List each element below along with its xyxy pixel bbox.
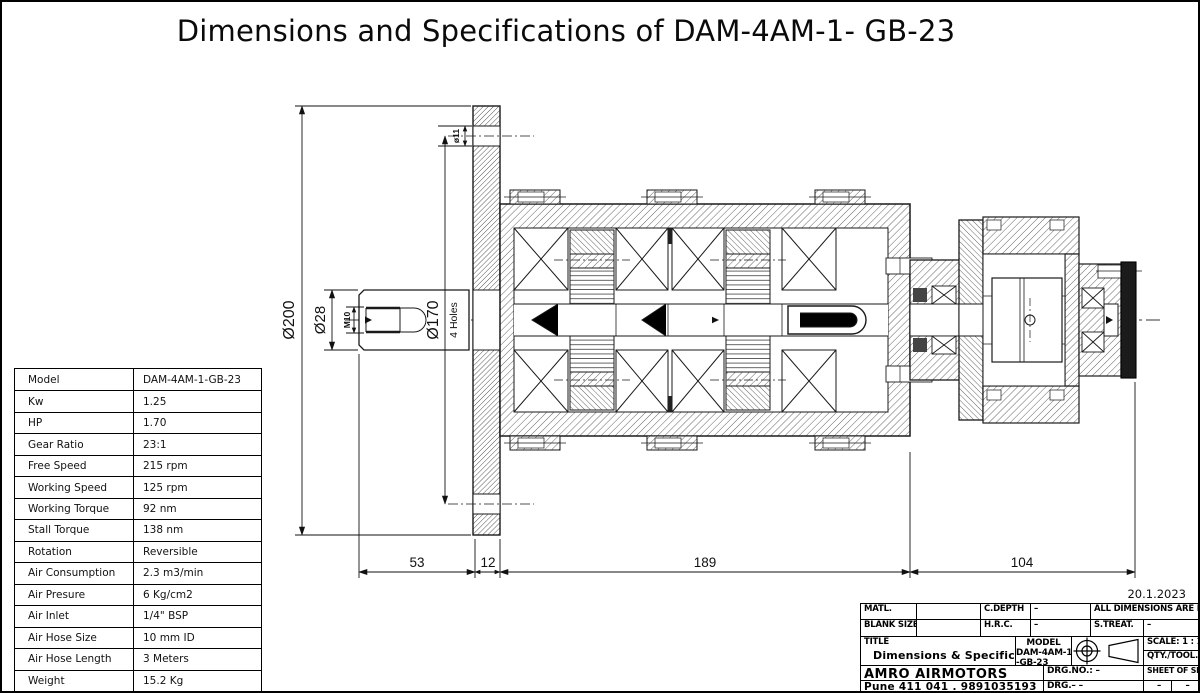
spec-label: Air Inlet — [15, 606, 133, 626]
spec-label: Free Speed — [15, 456, 133, 476]
spec-label: Working Speed — [15, 477, 133, 497]
cdepth-value: – — [1030, 603, 1091, 620]
spec-value: 92 nm — [133, 499, 261, 519]
spec-value: 6 Kg/cm2 — [133, 585, 261, 605]
table-row: Stall Torque138 nm — [15, 519, 261, 540]
rear-end-cap — [1079, 262, 1142, 378]
cdepth-label: C.DEPTH — [980, 603, 1031, 620]
model-cell: MODEL DAM-4AM-1 -GB-23 — [1015, 636, 1072, 666]
sheet-dash-1: – — [1143, 680, 1172, 693]
spec-value: 1.70 — [133, 413, 261, 433]
table-row: Air Presure6 Kg/cm2 — [15, 584, 261, 605]
dim-12: 12 — [480, 555, 495, 570]
blank-size-label: BLANK SIZE — [860, 619, 917, 637]
qty-tool-cell: QTY./TOOL.: – — [1143, 650, 1200, 666]
blank-size-value — [916, 619, 981, 637]
dim-104: 104 — [1011, 555, 1034, 570]
spec-label: Air Presure — [15, 585, 133, 605]
spec-label: Model — [15, 369, 133, 390]
spec-label: Air Hose Length — [15, 649, 133, 669]
scale-cell: SCALE: 1 : 1 — [1143, 636, 1200, 651]
table-row: Air Hose Size10 mm ID — [15, 627, 261, 648]
spec-value: 15.2 Kg — [133, 671, 261, 691]
title-value: Dimensions & Specifications — [873, 650, 1015, 662]
spec-value: 10 mm ID — [133, 628, 261, 648]
spec-value: Reversible — [133, 542, 261, 562]
model-value-1: DAM-4AM-1 — [1016, 648, 1071, 658]
dim-d170: Ø170 — [425, 300, 442, 339]
spec-value: 23:1 — [133, 434, 261, 454]
gearbox-housing — [500, 190, 910, 450]
all-dims-note: ALL DIMENSIONS ARE IN MM. — [1090, 603, 1200, 620]
table-row: ModelDAM-4AM-1-GB-23 — [15, 369, 261, 390]
drg-no-cell: DRG.NO.: – — [1043, 665, 1144, 681]
hrc-label: H.R.C. — [980, 619, 1031, 637]
projection-symbol-cell — [1071, 636, 1144, 666]
spec-value: 125 rpm — [133, 477, 261, 497]
spec-value: 2.3 m3/min — [133, 563, 261, 583]
spec-label: Air Hose Size — [15, 628, 133, 648]
dim-m10: M10 — [342, 311, 352, 328]
table-row: Kw1.25 — [15, 390, 261, 411]
dim-189: 189 — [694, 555, 717, 570]
matl-label: MATL. — [860, 603, 917, 620]
spec-label: HP — [15, 413, 133, 433]
dim-53: 53 — [409, 555, 424, 570]
spec-label: Gear Ratio — [15, 434, 133, 454]
title-cell: TITLE Dimensions & Specifications — [860, 636, 1016, 666]
spec-value: 215 rpm — [133, 456, 261, 476]
spec-value: 138 nm — [133, 520, 261, 540]
table-row: Air Consumption2.3 m3/min — [15, 562, 261, 583]
spec-label: Air Consumption — [15, 563, 133, 583]
title-label: TITLE — [864, 638, 1015, 647]
central-shaft — [514, 304, 888, 336]
sheet-dash-2: – — [1171, 680, 1200, 693]
streat-label: S.TREAT. — [1090, 619, 1144, 637]
spec-label: Kw — [15, 391, 133, 411]
table-row: Gear Ratio23:1 — [15, 433, 261, 454]
spec-label: Stall Torque — [15, 520, 133, 540]
spec-value: 1.25 — [133, 391, 261, 411]
table-row: Weight15.2 Kg — [15, 670, 261, 691]
dim-4holes: 4 Holes — [448, 302, 460, 338]
spec-label: Rotation — [15, 542, 133, 562]
dim-d28: Ø28 — [312, 306, 329, 334]
spec-label: Weight — [15, 671, 133, 691]
drg-cell: DRG.– – — [1043, 680, 1144, 693]
sheet-cell: SHEET OF SHEETS — [1143, 665, 1200, 681]
rotor — [992, 278, 1062, 362]
hrc-value: – — [1030, 619, 1091, 637]
matl-value — [916, 603, 981, 620]
model-label: MODEL — [1016, 638, 1071, 648]
drawing-date: 20.1.2023 — [1102, 587, 1186, 601]
motor-housing — [959, 217, 1079, 423]
table-row: Air Hose Length3 Meters — [15, 648, 261, 669]
table-row: Working Speed125 rpm — [15, 476, 261, 497]
end-plate-dark — [1121, 262, 1136, 378]
title-block: MATL. C.DEPTH – ALL DIMENSIONS ARE IN MM… — [860, 603, 1200, 693]
company-name: AMRO AIRMOTORS — [860, 665, 1044, 681]
table-row: Free Speed215 rpm — [15, 455, 261, 476]
drawing-sheet: Dimensions and Specifications of DAM-4AM… — [0, 0, 1200, 693]
company-address: Pune 411 041 . 9891035193 — [860, 680, 1044, 693]
streat-value: – — [1143, 619, 1200, 637]
spec-label: Working Torque — [15, 499, 133, 519]
table-row: RotationReversible — [15, 541, 261, 562]
dim-d200: Ø200 — [281, 300, 298, 339]
table-row: HP1.70 — [15, 412, 261, 433]
spec-value: 3 Meters — [133, 649, 261, 669]
projection-symbol-icon — [1073, 637, 1143, 665]
table-row: Air Inlet1/4" BSP — [15, 605, 261, 626]
spec-value: DAM-4AM-1-GB-23 — [133, 369, 261, 390]
spec-table: ModelDAM-4AM-1-GB-23 Kw1.25 HP1.70 Gear … — [14, 368, 262, 692]
dim-d11: ø11 — [451, 129, 461, 143]
table-row: Working Torque92 nm — [15, 498, 261, 519]
spec-value: 1/4" BSP — [133, 606, 261, 626]
